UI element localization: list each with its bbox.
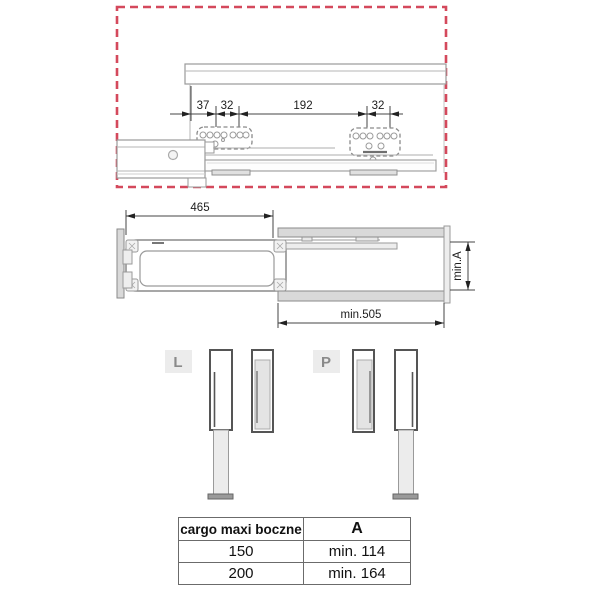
- rail-section-label-P: P: [321, 354, 331, 371]
- spec-header-product: cargo maxi boczne: [179, 518, 304, 541]
- technical-diagram-page: 37 32 192 32: [0, 0, 600, 600]
- dim-min505-label: min.505: [341, 309, 382, 321]
- dim-37-label: 37: [197, 100, 210, 112]
- front-fixing-box: [117, 140, 214, 187]
- spec-table-header-row: cargo maxi boczne A: [179, 518, 411, 541]
- rail-P-base: [393, 494, 418, 499]
- rail-P-inner: [353, 350, 374, 432]
- dim-465: [126, 210, 273, 238]
- spec-cell-a-200: min. 164: [304, 563, 411, 585]
- table-row: 150 min. 114: [179, 541, 411, 563]
- screw-mark: [169, 151, 178, 160]
- diagram-canvas: 37 32 192 32: [0, 0, 600, 600]
- bar-foot-rear: [350, 170, 397, 175]
- extended-top-view: 465: [117, 202, 475, 328]
- box-step: [188, 178, 206, 187]
- cabinet-back-edge: [444, 226, 450, 303]
- table-row: 200 min. 164: [179, 563, 411, 585]
- hook-piece: [205, 142, 214, 153]
- cabinet-top-board: [278, 228, 444, 237]
- rail-L-base: [208, 494, 233, 499]
- telescopic-rail: [280, 237, 397, 249]
- spec-header-a: A: [304, 518, 411, 541]
- dim-32b-label: 32: [372, 100, 385, 112]
- spec-table: cargo maxi boczne A 150 min. 114 200 min…: [178, 517, 411, 585]
- cabinet-bottom-board: [278, 291, 444, 301]
- dim-minA-label: min.A: [452, 251, 464, 281]
- door-clip-lower: [123, 272, 132, 288]
- bar-foot-front: [212, 170, 250, 175]
- cargo-frame: [123, 240, 286, 291]
- rail-L-leg: [214, 430, 229, 494]
- mounting-bracket-rear: [350, 128, 400, 156]
- rail-P-outer: [393, 350, 418, 499]
- rail-section-label-L: L: [173, 354, 182, 371]
- dim-32a-label: 32: [221, 100, 234, 112]
- spec-cell-size-200: 200: [179, 563, 304, 585]
- bottom-slide-bar: [205, 148, 436, 175]
- rail-L-inner: [252, 350, 273, 432]
- spec-cell-a-150: min. 114: [304, 541, 411, 563]
- rail-P-leg: [399, 430, 414, 494]
- spec-cell-size-150: 150: [179, 541, 304, 563]
- dim-465-label: 465: [190, 202, 209, 214]
- top-detail-view: 37 32 192 32: [117, 7, 446, 187]
- rail-L-outer: [208, 350, 233, 499]
- door-clip-upper: [123, 250, 132, 264]
- rail-profiles-section: L P: [165, 350, 418, 499]
- dim-192-label: 192: [293, 100, 312, 112]
